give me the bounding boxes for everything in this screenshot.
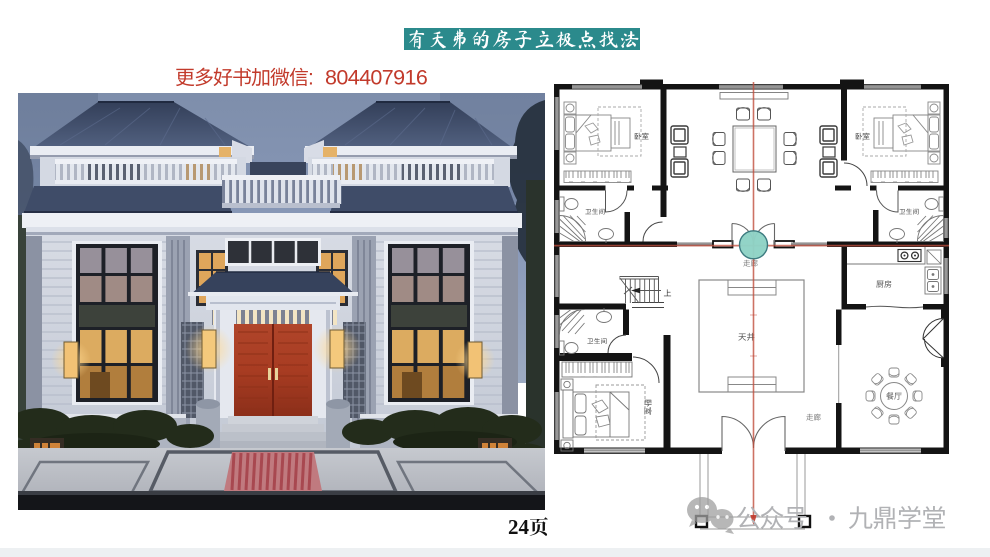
svg-text:24: 24 <box>508 515 530 539</box>
svg-text:804407916: 804407916 <box>325 66 428 90</box>
svg-text::: : <box>308 67 314 90</box>
